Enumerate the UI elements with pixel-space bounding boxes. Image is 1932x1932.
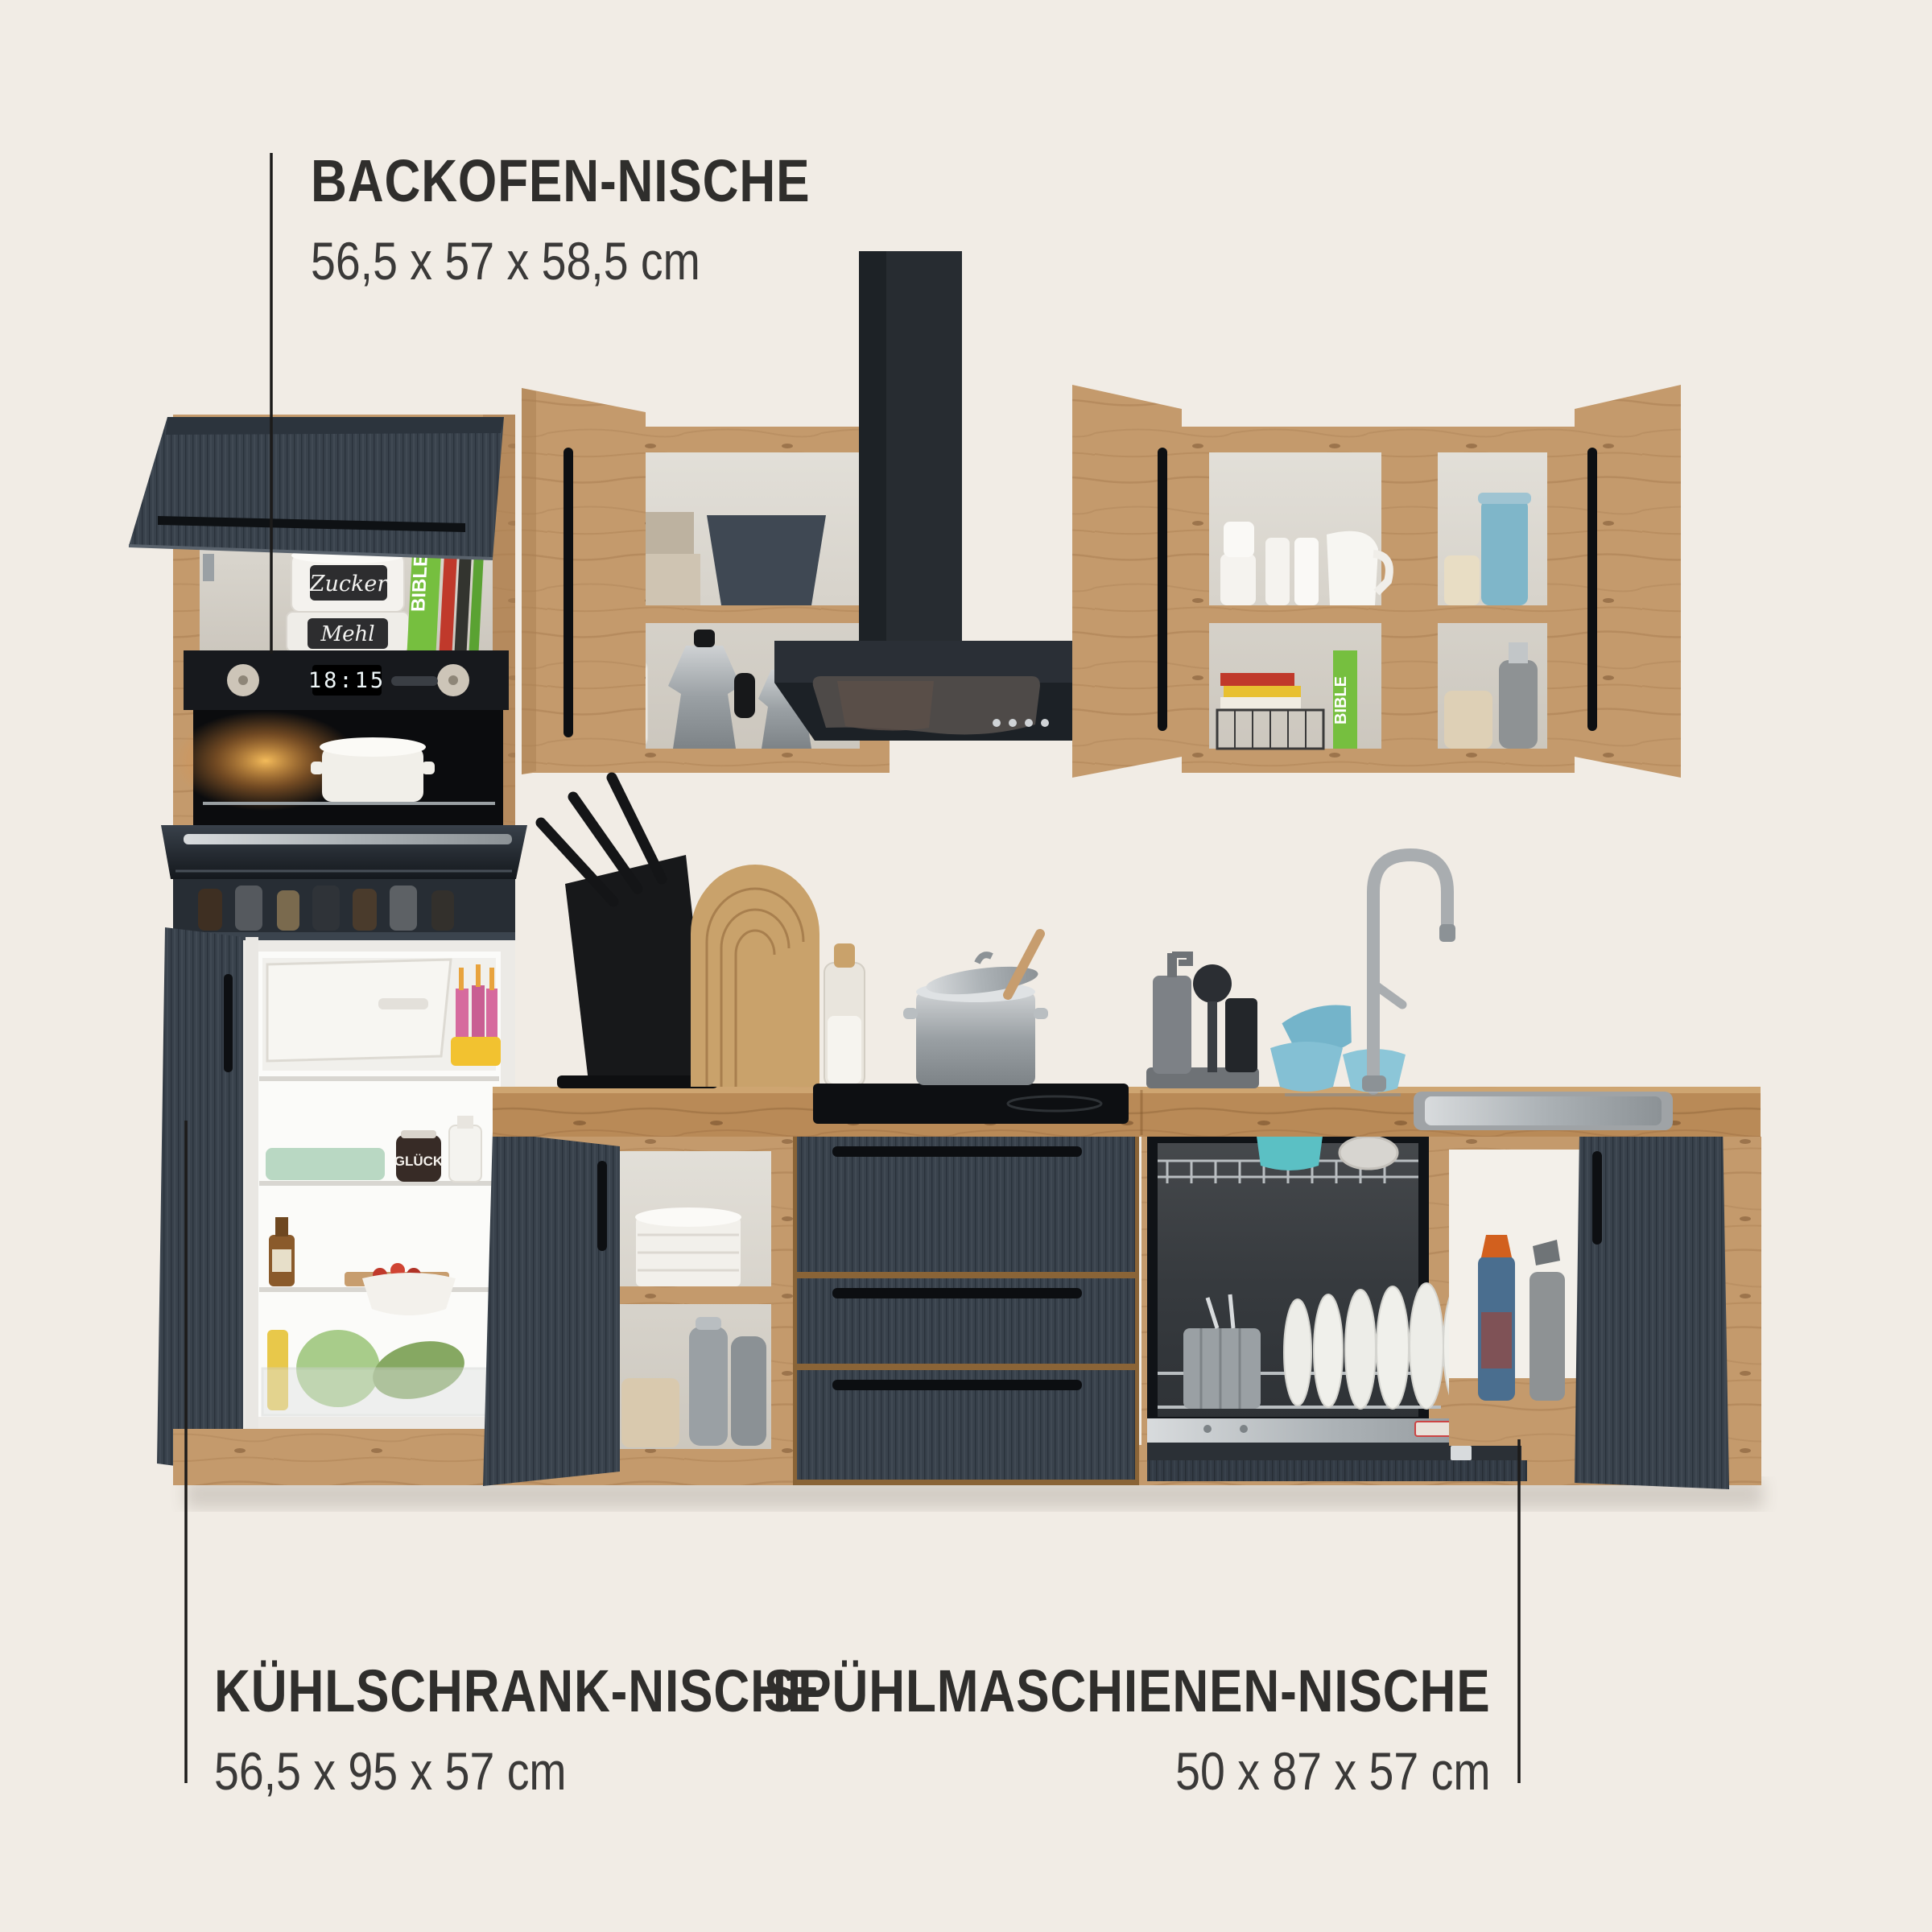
oven-pot [311, 737, 435, 802]
cutting-board [691, 865, 819, 1087]
annotation-spuelmaschine: SPÜHLMASCHIENEN-NISCHE 50 x 87 x 57 cm [764, 1660, 1491, 1802]
base-cabinet-dishes [483, 1132, 793, 1486]
base-cabinet-shelf [613, 1286, 771, 1304]
wall-cabinet-right-shelf-a [1209, 605, 1381, 623]
wall-cabinet-right-door-left [1072, 385, 1182, 778]
annotation-spuelmaschine-dimensions: 50 x 87 x 57 cm [764, 1740, 1491, 1802]
wall-cabinet-right-shelf-b [1438, 605, 1547, 623]
hood-duct-shade [859, 251, 886, 647]
wall-right-door-left-handle [1158, 448, 1167, 731]
pot-lid-handle [977, 955, 992, 963]
faucet [1362, 855, 1455, 1092]
wall-cabinet-left-door-open [522, 388, 646, 774]
drawer-1 [797, 1137, 1135, 1272]
plate-stacks [635, 1207, 741, 1286]
annotation-backofen: BACKOFEN-NISCHE 56,5 x 57 x 58,5 cm [311, 150, 810, 291]
dish-brush [1193, 964, 1232, 1003]
beige-canister [1444, 691, 1492, 749]
dishwasher-door-edge [1147, 1460, 1527, 1481]
kitchen-illustration: Zucker Mehl BIBLE 18:15 [0, 0, 1932, 1932]
base-cabinet-door-open [483, 1132, 620, 1486]
detergent-bottle [1478, 1235, 1515, 1401]
tall-unit: Zucker Mehl BIBLE 18:15 [129, 415, 527, 1485]
green-casserole [266, 1148, 385, 1180]
tray-bottle-7 [431, 890, 454, 931]
blue-canister [1481, 499, 1528, 605]
tray-bottle-1 [198, 889, 222, 931]
base-door-right-handle [1592, 1151, 1602, 1245]
annotation-kuehlschrank-dimensions: 56,5 x 95 x 57 cm [214, 1740, 821, 1802]
oven-door-handle [184, 834, 512, 844]
tray-bottle-4 [312, 885, 340, 931]
base-cabinet-door-handle [597, 1161, 607, 1251]
dishwasher-power-button [1451, 1446, 1472, 1460]
base-run [483, 1087, 1761, 1489]
black-sponge [1225, 998, 1257, 1072]
tray-bottle-5 [353, 889, 377, 931]
mesh-bottle [1499, 660, 1538, 749]
oven-buttons [391, 676, 438, 686]
product-image-kitchen: Zucker Mehl BIBLE 18:15 [0, 0, 1932, 1932]
annotation-kuehlschrank: KÜHLSCHRANK-NISCHE 56,5 x 95 x 57 cm [214, 1660, 821, 1802]
sink-caddy [1146, 953, 1259, 1088]
fridge: GLÜCK [242, 940, 515, 1429]
soap-dispenser [1153, 976, 1191, 1074]
glueck-jar-label: GLÜCK [394, 1154, 444, 1169]
drawer-2-handle [832, 1288, 1082, 1298]
oven-display-time: 18:15 [308, 668, 386, 693]
annotation-spuelmaschine-title: SPÜHLMASCHIENEN-NISCHE [764, 1660, 1491, 1723]
cream-jar [1444, 555, 1480, 605]
fridge-door-inner-edge [246, 937, 258, 1473]
book-bible-right-title: BIBLE [1332, 676, 1350, 724]
dishwasher [1141, 1122, 1761, 1489]
drawer-3-handle [832, 1380, 1082, 1390]
fridge-door-handle [224, 974, 233, 1072]
wall-cabinet-left-door-handle [563, 448, 573, 737]
cleaning-niche [1449, 1150, 1582, 1446]
base-door-right-open [1575, 1122, 1761, 1489]
freezer-door-open [267, 960, 451, 1061]
drawer-unit [793, 1137, 1139, 1485]
oven-door-open [161, 825, 527, 879]
flap-hinge [203, 554, 214, 581]
cooktop [813, 1084, 1129, 1124]
annotation-kuehlschrank-title: KÜHLSCHRANK-NISCHE [214, 1660, 821, 1723]
drawer-1-handle [832, 1146, 1082, 1157]
faucet-spout [1439, 924, 1455, 942]
annotation-backofen-title: BACKOFEN-NISCHE [311, 150, 810, 213]
pot-on-cooktop [903, 934, 1048, 1085]
tray-bottle-6 [390, 885, 417, 931]
storage-tin-zucker: Zucker [291, 547, 404, 612]
oven: 18:15 [161, 650, 527, 879]
white-pitcher [1327, 531, 1378, 605]
tin-label-mehl: Mehl [320, 622, 374, 646]
milk-bottle [449, 1116, 481, 1182]
annotation-backofen-dimensions: 56,5 x 57 x 58,5 cm [311, 230, 810, 291]
countertop-items [541, 778, 1673, 1130]
salt-bottle-cork [834, 943, 855, 968]
teal-bowl-1 [1270, 1042, 1343, 1092]
ceramic-canister [621, 1378, 679, 1447]
glueck-jar: GLÜCK [394, 1130, 444, 1182]
tall-unit-plinth [173, 1429, 515, 1485]
hood-towel [813, 676, 1040, 734]
book-bible-title: BIBLE [407, 554, 432, 612]
wall-cabinet-right-door-right [1575, 385, 1681, 778]
tray-bottle-2 [235, 885, 262, 931]
freezer-compartment [262, 958, 501, 1071]
wall-cabinets-right: BIBLE [1072, 385, 1681, 778]
salt-bottle [824, 943, 865, 1087]
tin-label-zucker: Zucker [309, 572, 390, 597]
storage-tin-mehl: Mehl [287, 612, 409, 652]
tray-bottle-3 [277, 890, 299, 931]
pullout-bottle-tray [173, 879, 515, 942]
wall-right-door-right-handle [1587, 448, 1597, 731]
